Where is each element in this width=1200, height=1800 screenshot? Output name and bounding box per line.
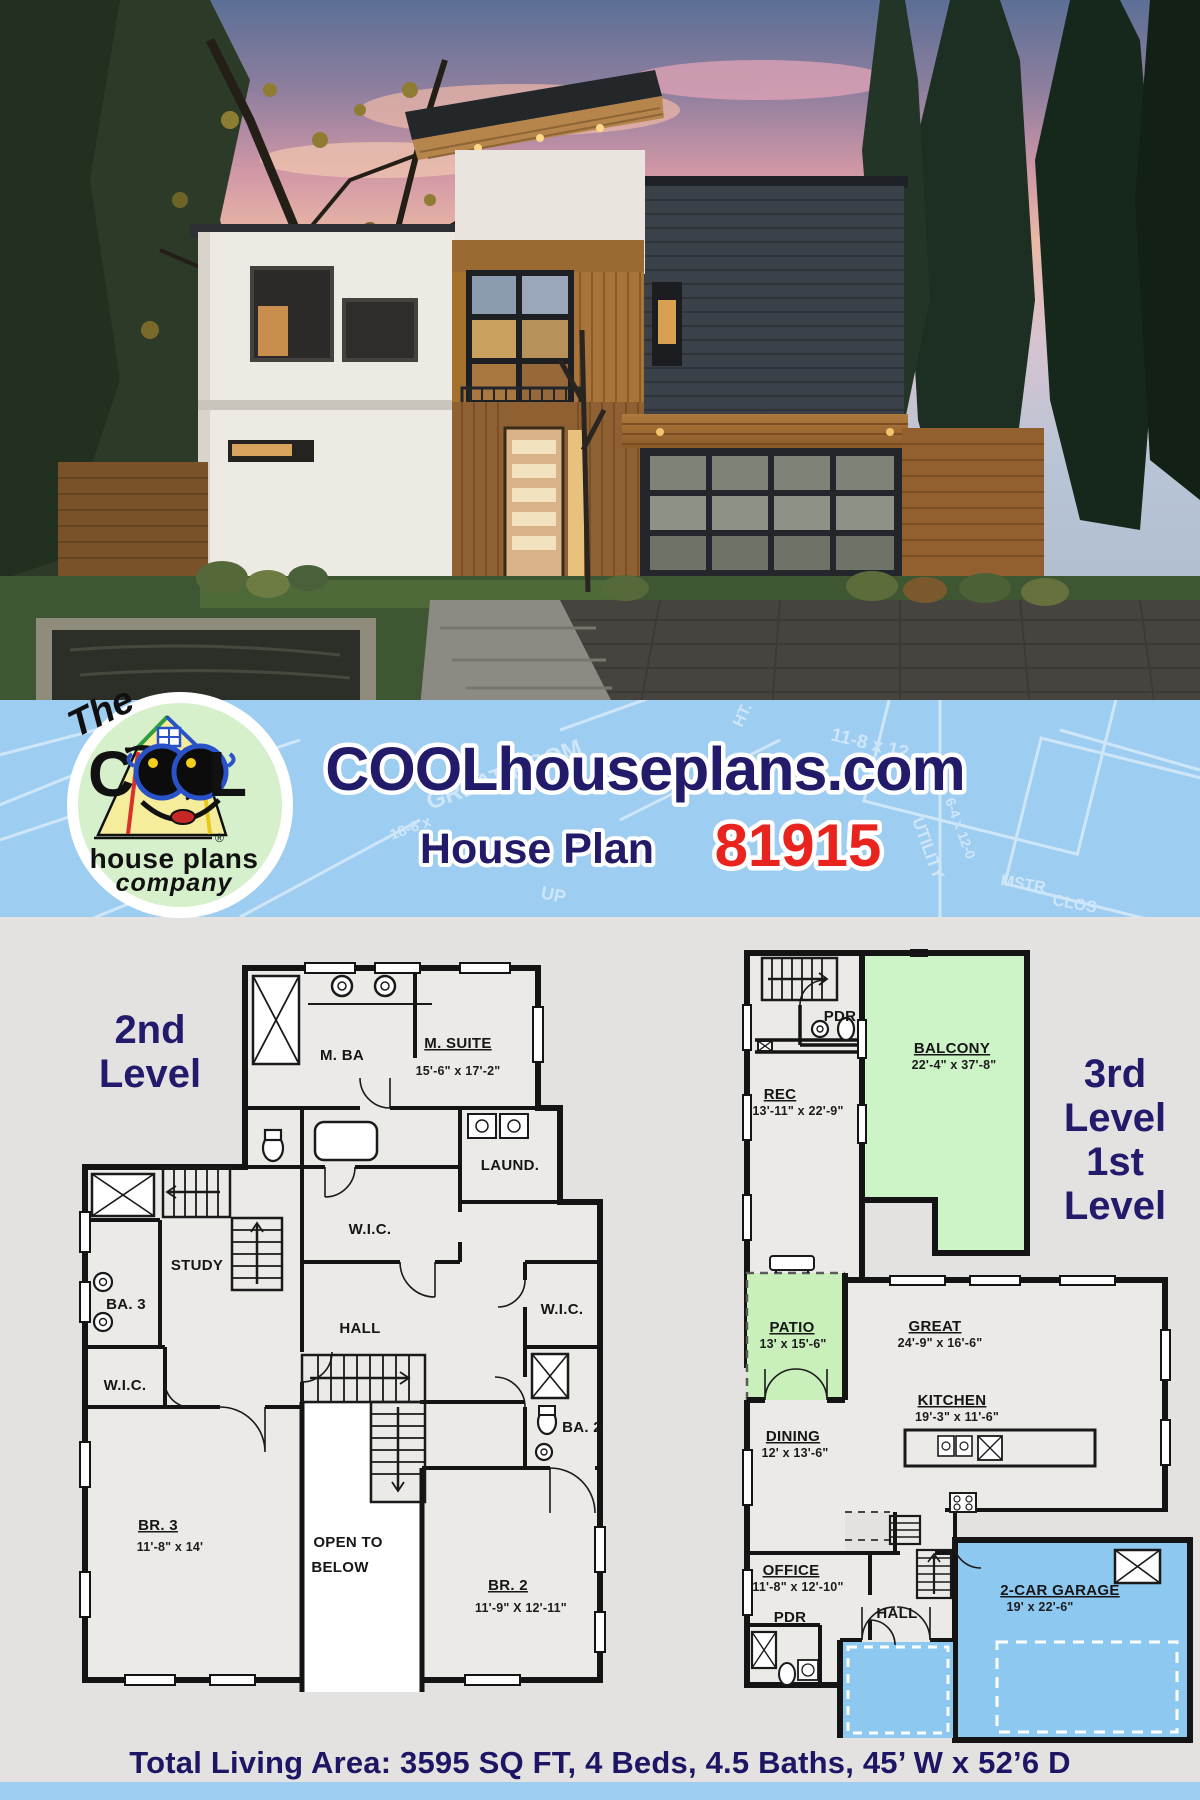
- label-open2: BELOW: [311, 1559, 369, 1576]
- label-kitchen: KITCHEN: [918, 1392, 987, 1409]
- third-level-line1: 3rd: [1035, 1052, 1195, 1096]
- plan-number: 81915: [715, 812, 882, 879]
- site-title: COOLhouseplans.com: [325, 735, 965, 803]
- sidelight: [568, 430, 584, 578]
- label-dining: DINING: [766, 1428, 820, 1445]
- garage-band: [622, 414, 908, 448]
- sketch-clos: CLOS: [1051, 892, 1098, 917]
- dim-msuite: 15'-6" x 17'-2": [416, 1064, 501, 1078]
- third-level-label: 3rd Level: [1035, 1052, 1195, 1140]
- first-level-line2: Level: [1035, 1184, 1195, 1228]
- dim-garage: 19' x 22'-6": [1006, 1600, 1073, 1614]
- label-ba2: BA. 2: [562, 1419, 602, 1436]
- label-patio: PATIO: [769, 1319, 814, 1336]
- poster-page: GREAT ROOM 18-6 x 11-8 x 12 UTILITY 6-4 …: [0, 0, 1200, 1800]
- dim-br3: 11'-8" x 14': [137, 1540, 203, 1554]
- upper-window-2: [344, 300, 416, 360]
- dim-rec: 13'-11" x 22'-9": [752, 1104, 843, 1118]
- house-photo: [0, 0, 1200, 705]
- label-office: OFFICE: [763, 1562, 820, 1579]
- garage-xbox: [1115, 1550, 1160, 1583]
- label-garage: 2-CAR GARAGE: [1000, 1582, 1119, 1599]
- label-msuite: M. SUITE: [424, 1035, 491, 1052]
- label-great: GREAT: [909, 1318, 962, 1335]
- logo-l: L: [208, 738, 247, 810]
- label-wic-master: W.I.C.: [349, 1221, 392, 1238]
- first-level-line1: 1st: [1035, 1140, 1195, 1184]
- label-pdr-1st: PDR: [774, 1609, 807, 1626]
- dim-patio: 13' x 15'-6": [759, 1337, 826, 1351]
- label-pdr-3rd: PDR: [824, 1008, 857, 1025]
- label-laundry: LAUND.: [481, 1157, 539, 1174]
- logo-c: C: [88, 738, 134, 810]
- dim-great: 24'-9" x 16'-6": [898, 1336, 983, 1350]
- tongue: [171, 810, 195, 824]
- dim-br2: 11'-9" X 12'-11": [475, 1601, 567, 1615]
- label-wic-br2: W.I.C.: [541, 1301, 584, 1318]
- logo-company: company: [116, 869, 233, 897]
- label-study: STUDY: [171, 1257, 223, 1274]
- dim-balcony: 22'-4" x 37'-8": [912, 1058, 997, 1072]
- window-icon: [158, 728, 180, 746]
- label-mba: M. BA: [320, 1047, 364, 1064]
- left-fence: [58, 462, 208, 580]
- label-open1: OPEN TO: [313, 1534, 382, 1551]
- dim-kitchen: 19'-3" x 11'-6": [915, 1410, 999, 1424]
- banner-subtitle: House Plan: [420, 825, 654, 873]
- sketch-utility: UTILITY: [908, 815, 948, 882]
- dim-dining: 12' x 13'-6": [761, 1446, 828, 1460]
- dim-office: 11'-8" x 12'-10": [752, 1580, 843, 1594]
- entry-porch: [843, 1642, 953, 1738]
- driveway: [520, 600, 1200, 705]
- summary-bar: Total Living Area: 3595 SQ FT, 4 Beds, 4…: [0, 1742, 1200, 1782]
- label-hall-1st: HALL: [876, 1605, 917, 1622]
- sketch-mstr: MSTR: [999, 872, 1047, 897]
- sketch-ht: HT.: [730, 701, 756, 730]
- first-level-plan: PATIO 13' x 15'-6" GREAT 24'-9" x 16'-6"…: [640, 1250, 1200, 1750]
- label-br2: BR. 2: [488, 1577, 528, 1594]
- sketch-up: UP: [539, 882, 568, 907]
- second-level-plan: M. BA M. SUITE 15'-6" x 17'-2" W.I.C. LA…: [70, 962, 610, 1692]
- balcony-area: [862, 953, 1027, 1253]
- label-ba3: BA. 3: [106, 1296, 146, 1313]
- label-rec: REC: [764, 1086, 797, 1103]
- third-level-line2: Level: [1035, 1096, 1195, 1140]
- label-wic-br3: W.I.C.: [104, 1377, 147, 1394]
- label-balcony: BALCONY: [914, 1040, 990, 1057]
- bottom-blue-strip: [0, 1782, 1200, 1800]
- label-hall: HALL: [339, 1320, 380, 1337]
- grill-icon: [770, 1256, 814, 1273]
- label-br3: BR. 3: [138, 1517, 178, 1534]
- first-level-label: 1st Level: [1035, 1140, 1195, 1228]
- cool-house-plans-logo: The C L ®: [62, 686, 302, 926]
